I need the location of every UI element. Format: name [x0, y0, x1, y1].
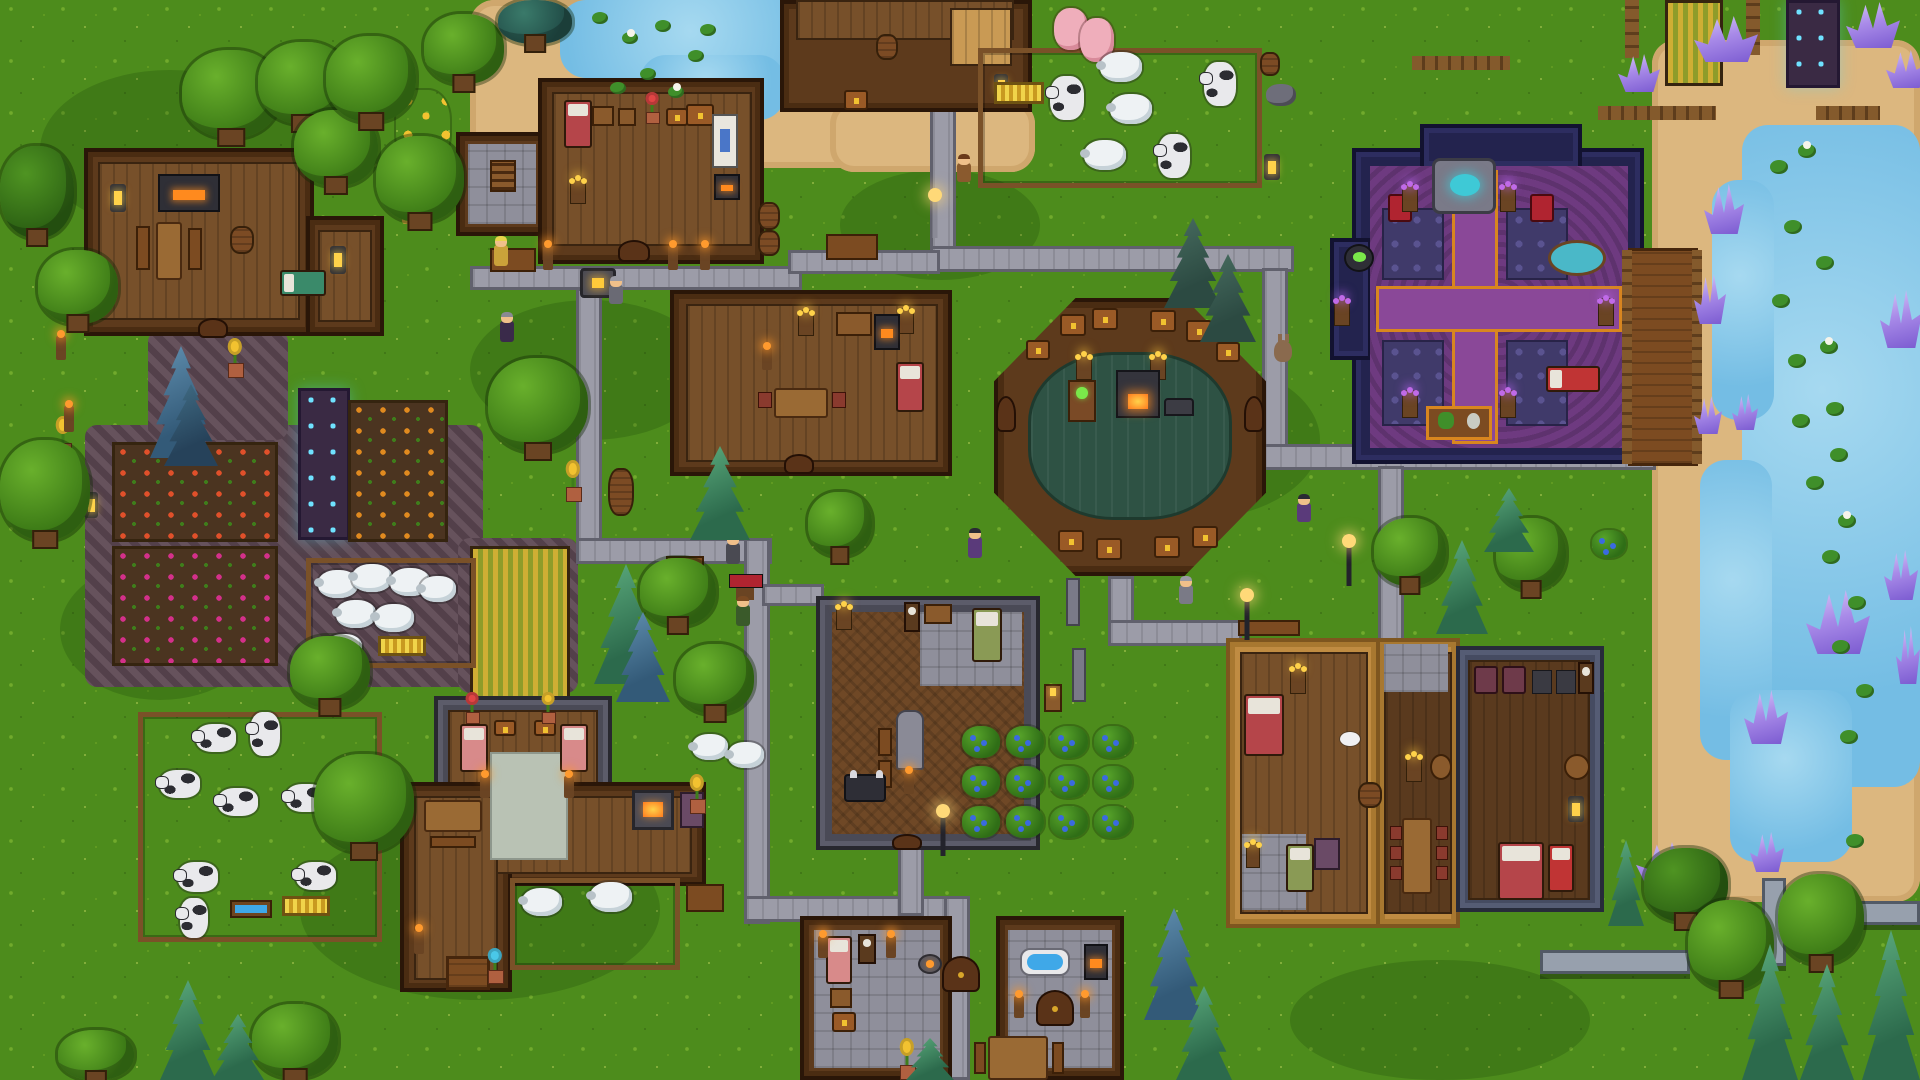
- tree: [0, 146, 74, 238]
- candelabra: [1406, 754, 1422, 782]
- lily-pad: [1822, 550, 1840, 564]
- door[interactable]: [618, 240, 650, 262]
- bench[interactable]: [878, 728, 892, 756]
- potted-flower[interactable]: [564, 460, 582, 502]
- villager-npc[interactable]: [608, 276, 624, 304]
- double-bed[interactable]: [1498, 842, 1544, 900]
- hay-trough[interactable]: [994, 82, 1044, 104]
- lily-pad: [1832, 640, 1850, 654]
- candelabra: [570, 178, 586, 204]
- lantern[interactable]: [330, 246, 346, 274]
- torch: [64, 406, 74, 432]
- barrel[interactable]: [1358, 782, 1382, 808]
- berry-bush: [1050, 766, 1088, 798]
- dresser[interactable]: [618, 108, 636, 126]
- sheep[interactable]: [1084, 140, 1126, 170]
- bench[interactable]: [430, 836, 476, 848]
- pale-stone-floor: [490, 752, 568, 860]
- sheep[interactable]: [374, 604, 414, 632]
- ornate-door[interactable]: [1036, 990, 1074, 1026]
- chest[interactable]: [1216, 342, 1240, 362]
- lily-pad: [700, 24, 716, 36]
- torch: [56, 336, 66, 360]
- villager-npc[interactable]: [966, 528, 984, 558]
- cow[interactable]: [1050, 76, 1084, 120]
- chair[interactable]: [1390, 826, 1402, 840]
- bench[interactable]: [188, 228, 202, 270]
- tree: [314, 754, 414, 852]
- chest[interactable]: [1058, 530, 1084, 552]
- barrel[interactable]: [1260, 52, 1280, 76]
- ritual-pool[interactable]: [1450, 174, 1480, 196]
- lily-pad: [1816, 256, 1834, 270]
- berry-bush: [1094, 726, 1132, 758]
- torch: [543, 246, 553, 270]
- chest[interactable]: [832, 1012, 856, 1032]
- door[interactable]: [1244, 396, 1264, 432]
- tree: [376, 136, 464, 222]
- chest[interactable]: [1150, 310, 1176, 332]
- barrel[interactable]: [876, 34, 898, 60]
- torch: [480, 776, 490, 798]
- grandfather-clock[interactable]: [904, 602, 920, 632]
- chair[interactable]: [1436, 846, 1448, 860]
- lantern[interactable]: [1264, 154, 1280, 180]
- grandfather-clock[interactable]: [858, 934, 876, 964]
- torch: [818, 936, 828, 958]
- bench[interactable]: [826, 234, 878, 260]
- fence: [1622, 250, 1632, 464]
- forge-furnace[interactable]: [1116, 370, 1160, 418]
- fence: [1412, 56, 1510, 70]
- lily-pad: [1770, 160, 1788, 174]
- potted-flower[interactable]: [540, 692, 556, 724]
- sheep[interactable]: [1110, 94, 1152, 124]
- berry-bush: [962, 726, 1000, 758]
- barrel-stack[interactable]: [608, 468, 634, 516]
- villager-npc[interactable]: [492, 236, 510, 266]
- cow[interactable]: [250, 712, 280, 756]
- cabinet[interactable]: [1314, 838, 1340, 870]
- table[interactable]: [1402, 818, 1432, 894]
- fence: [1625, 0, 1639, 58]
- fire-pit[interactable]: [918, 954, 942, 974]
- pine-tree: [1800, 964, 1854, 1080]
- chest[interactable]: [1092, 308, 1118, 330]
- street-lamp[interactable]: [1340, 534, 1358, 586]
- stove[interactable]: [1084, 944, 1108, 980]
- chest[interactable]: [1096, 538, 1122, 560]
- stove[interactable]: [714, 174, 740, 200]
- chest[interactable]: [1192, 526, 1218, 548]
- lily-pad: [688, 50, 704, 62]
- lily-pad: [1826, 402, 1844, 416]
- tomb[interactable]: [896, 710, 924, 770]
- armchair[interactable]: [1502, 666, 1526, 694]
- chair[interactable]: [832, 392, 846, 408]
- pine-tree: [1144, 908, 1204, 1020]
- door[interactable]: [198, 318, 228, 338]
- villager-npc[interactable]: [734, 596, 752, 626]
- grandfather-clock[interactable]: [1578, 662, 1594, 694]
- purple-candelabra: [1402, 184, 1418, 212]
- cow[interactable]: [1204, 62, 1236, 106]
- lily-pad: [1788, 354, 1806, 368]
- bed[interactable]: [1286, 844, 1314, 892]
- lily-pad: [1830, 448, 1848, 462]
- dresser[interactable]: [924, 604, 952, 624]
- lantern[interactable]: [110, 184, 126, 212]
- tree: [488, 358, 588, 452]
- tree: [38, 250, 118, 324]
- purple-candelabra: [1334, 298, 1350, 326]
- candelabra: [836, 604, 852, 630]
- lily-pad: [1784, 220, 1802, 234]
- purple-candelabra: [1598, 298, 1614, 326]
- crop-plot: [112, 546, 278, 666]
- villager-npc[interactable]: [1296, 494, 1312, 522]
- side-table[interactable]: [1564, 754, 1590, 780]
- lily-pad: [1806, 476, 1824, 490]
- stone-wall: [1540, 950, 1690, 974]
- barrel[interactable]: [758, 202, 780, 230]
- lily-pad: [1772, 294, 1790, 308]
- potted-flower[interactable]: [644, 92, 660, 124]
- hay-trough[interactable]: [282, 896, 330, 916]
- berry-bush: [1006, 766, 1044, 798]
- sheep[interactable]: [420, 576, 456, 602]
- bench[interactable]: [136, 226, 150, 270]
- chair[interactable]: [1436, 826, 1448, 840]
- door[interactable]: [996, 396, 1016, 432]
- sheep[interactable]: [590, 882, 632, 912]
- chest[interactable]: [1060, 314, 1086, 336]
- lily-pad: [655, 20, 671, 32]
- torch: [668, 246, 678, 270]
- tree: [326, 36, 416, 122]
- barrel[interactable]: [230, 226, 254, 254]
- stone-lamp[interactable]: [926, 188, 944, 238]
- dresser[interactable]: [836, 312, 872, 336]
- chest[interactable]: [494, 720, 516, 736]
- berry-bush: [1094, 766, 1132, 798]
- berry-bush: [1006, 806, 1044, 838]
- table[interactable]: [156, 222, 182, 280]
- lantern[interactable]: [1568, 796, 1584, 822]
- pine-tree: [1862, 930, 1920, 1080]
- bed[interactable]: [564, 100, 592, 148]
- glowing-crop-plot: [1786, 0, 1840, 88]
- chest[interactable]: [686, 104, 714, 126]
- stone-path: [762, 584, 824, 606]
- door[interactable]: [784, 454, 814, 474]
- wood-deck: [446, 956, 490, 990]
- bed[interactable]: [896, 362, 924, 412]
- stone-pillar: [1066, 578, 1080, 626]
- glowing-crop-plot: [298, 388, 350, 540]
- villager-npc[interactable]: [498, 312, 516, 342]
- tree: [1778, 874, 1864, 964]
- lily-pad: [1820, 340, 1838, 354]
- pine-tree: [160, 980, 216, 1080]
- stove[interactable]: [874, 314, 900, 350]
- tree: [640, 558, 716, 626]
- lily-pad: [668, 86, 684, 98]
- table[interactable]: [774, 388, 828, 418]
- tree: [498, 0, 572, 44]
- candelabra: [1246, 842, 1260, 868]
- table[interactable]: [424, 800, 482, 832]
- cow[interactable]: [178, 862, 218, 892]
- lily-pad: [1792, 414, 1810, 428]
- bench[interactable]: [686, 884, 724, 912]
- crypt-carpet: [1376, 286, 1622, 332]
- stone-path: [1108, 620, 1242, 646]
- cellar-ladder[interactable]: [490, 160, 516, 192]
- chest[interactable]: [844, 90, 868, 110]
- candelabra: [798, 310, 814, 336]
- double-bed[interactable]: [1244, 694, 1284, 756]
- cow[interactable]: [218, 788, 258, 816]
- bed[interactable]: [972, 608, 1002, 662]
- dresser[interactable]: [830, 988, 852, 1008]
- sheep[interactable]: [522, 888, 562, 916]
- wheat-plot: [470, 546, 570, 710]
- hay-trough[interactable]: [378, 636, 426, 656]
- bed[interactable]: [280, 270, 326, 296]
- potted-flower[interactable]: [226, 338, 244, 378]
- berry-bush: [1006, 726, 1044, 758]
- chair[interactable]: [1390, 866, 1402, 880]
- lily-pad: [592, 12, 608, 24]
- ornate-door[interactable]: [942, 956, 980, 992]
- bench[interactable]: [974, 1042, 986, 1074]
- rock: [1266, 84, 1296, 106]
- offering-shrine[interactable]: [1426, 406, 1492, 440]
- lily-pad: [1840, 730, 1858, 744]
- potted-flower[interactable]: [688, 774, 706, 814]
- furnace[interactable]: [158, 174, 220, 212]
- tree: [808, 492, 872, 556]
- bathtub[interactable]: [1020, 948, 1070, 976]
- cow[interactable]: [160, 770, 200, 798]
- torch: [762, 348, 772, 370]
- stone-floor: [1384, 644, 1448, 692]
- purple-candelabra: [1402, 390, 1418, 418]
- shrine-lantern[interactable]: [1044, 684, 1062, 712]
- chest[interactable]: [1154, 536, 1180, 558]
- torch: [1080, 996, 1090, 1018]
- torch: [700, 246, 710, 270]
- bed[interactable]: [826, 936, 852, 984]
- sheep[interactable]: [1100, 52, 1142, 82]
- anvil[interactable]: [1164, 398, 1194, 416]
- barrel[interactable]: [758, 230, 780, 256]
- map-table[interactable]: [1548, 240, 1606, 276]
- wood-deck: [1628, 248, 1698, 466]
- fence: [1816, 106, 1880, 120]
- portrait-banner[interactable]: [712, 114, 738, 168]
- cow[interactable]: [196, 724, 236, 752]
- tree: [0, 440, 90, 540]
- purple-crystal: [1846, 2, 1900, 48]
- candelabra: [1290, 666, 1306, 694]
- candelabra: [898, 308, 914, 334]
- door[interactable]: [892, 834, 922, 850]
- purple-candelabra: [1500, 184, 1516, 212]
- candelabra: [1076, 354, 1092, 380]
- berry-bush: [962, 766, 1000, 798]
- purple-candelabra: [1500, 390, 1516, 418]
- lily-pad: [1848, 596, 1866, 610]
- torch: [414, 930, 424, 954]
- cow[interactable]: [1158, 134, 1190, 178]
- berry-bush: [1050, 726, 1088, 758]
- chair[interactable]: [1556, 670, 1576, 694]
- lily-pad: [1798, 144, 1816, 158]
- potted-flower[interactable]: [486, 948, 504, 984]
- torch: [886, 936, 896, 958]
- cat[interactable]: [1340, 732, 1360, 746]
- lily-pad: [640, 68, 656, 80]
- side-table[interactable]: [1430, 754, 1452, 780]
- crop-plot: [348, 400, 448, 542]
- chair[interactable]: [1390, 846, 1402, 860]
- bed[interactable]: [560, 724, 588, 772]
- throne-chair[interactable]: [1530, 194, 1554, 222]
- tree: [424, 14, 504, 84]
- lily-pad: [1838, 514, 1856, 528]
- horned-idol[interactable]: [844, 774, 886, 802]
- torch: [564, 776, 574, 798]
- alchemy-table[interactable]: [1068, 380, 1096, 422]
- lily-pad: [1846, 834, 1864, 848]
- berry-bush: [962, 806, 1000, 838]
- table[interactable]: [988, 1036, 1048, 1080]
- chest[interactable]: [1026, 340, 1050, 360]
- fireplace[interactable]: [632, 790, 674, 830]
- wood-floor: [318, 230, 372, 322]
- sheep[interactable]: [728, 742, 764, 768]
- stone-path: [898, 844, 924, 916]
- torch: [1014, 996, 1024, 1018]
- bed[interactable]: [1546, 366, 1600, 392]
- armchair[interactable]: [1474, 666, 1498, 694]
- torch: [904, 772, 914, 794]
- sheep[interactable]: [692, 734, 728, 760]
- villager-npc[interactable]: [956, 154, 972, 182]
- chair[interactable]: [758, 392, 772, 408]
- water-trough[interactable]: [230, 900, 272, 918]
- tree: [1374, 518, 1446, 586]
- pine-tree: [1608, 840, 1644, 926]
- bench[interactable]: [1052, 1042, 1064, 1074]
- berry-bush: [1094, 806, 1132, 838]
- rabbit[interactable]: [1274, 340, 1292, 362]
- cow[interactable]: [296, 862, 336, 890]
- tree: [252, 1004, 338, 1078]
- chest[interactable]: [666, 108, 688, 126]
- lily-pad: [622, 32, 638, 44]
- tree: [58, 1030, 134, 1080]
- lily-pad: [610, 82, 626, 94]
- pond-water: [1730, 690, 1852, 862]
- fence: [1598, 106, 1716, 120]
- cauldron[interactable]: [1344, 244, 1374, 272]
- tree: [676, 644, 754, 714]
- potted-flower[interactable]: [464, 692, 480, 724]
- lily-pad: [1856, 684, 1874, 698]
- street-lamp[interactable]: [934, 804, 952, 856]
- tree: [1688, 900, 1774, 990]
- chair[interactable]: [1532, 670, 1552, 694]
- villager-npc[interactable]: [1178, 576, 1194, 604]
- street-lamp[interactable]: [1238, 588, 1256, 640]
- grass-shadow: [1290, 960, 1590, 1080]
- bed[interactable]: [1548, 844, 1574, 892]
- cow[interactable]: [180, 898, 208, 938]
- tree: [290, 636, 370, 708]
- dresser[interactable]: [592, 106, 614, 126]
- berry-bush: [1050, 806, 1088, 838]
- stone-path: [930, 246, 1294, 272]
- berry-bush: [1592, 530, 1626, 558]
- stone-pillar: [1072, 648, 1086, 702]
- village-map: [0, 0, 1920, 1080]
- chair[interactable]: [1436, 866, 1448, 880]
- bed[interactable]: [460, 724, 488, 772]
